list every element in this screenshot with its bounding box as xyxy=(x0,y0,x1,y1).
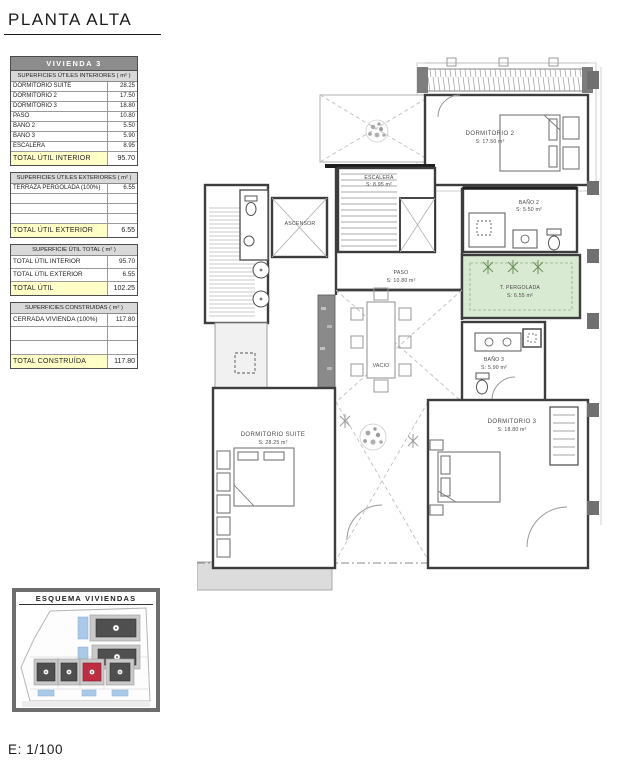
table-section-header: SUPERFICIES ÚTILES INTERIORES ( m² ) xyxy=(11,71,137,82)
surface-tables-panel: VIVIENDA 3 SUPERFICIES ÚTILES INTERIORES… xyxy=(10,56,138,375)
table-built-surfaces: SUPERFICIES CONSTRUIDAS ( m² ) CERRADA V… xyxy=(10,302,138,369)
toilet-icon xyxy=(547,229,561,250)
building-footprint xyxy=(106,659,134,685)
table-total-row: TOTAL CONSTRUÍDA117.80 xyxy=(11,355,137,368)
pool xyxy=(38,690,54,696)
table-row: DORMITORIO 217.50 xyxy=(11,92,137,102)
table-section-header: SUPERFICIE ÚTIL TOTAL ( m² ) xyxy=(11,245,137,256)
table-empty-row xyxy=(11,341,137,355)
table-row: CERRADA VIVIENDA (100%)117.80 xyxy=(11,314,137,327)
esquema-title: ESQUEMA VIVIENDAS xyxy=(19,592,153,605)
svg-text:S: 17.50 m²: S: 17.50 m² xyxy=(475,139,504,145)
svg-text:VACIO: VACIO xyxy=(373,363,390,369)
svg-text:S: 18.80 m²: S: 18.80 m² xyxy=(497,427,526,433)
highlighted-building xyxy=(80,659,104,685)
svg-text:DORMITORIO 3: DORMITORIO 3 xyxy=(488,419,537,425)
nightstand-icon xyxy=(563,147,579,169)
wardrobe-icon xyxy=(217,451,230,557)
table-total-useful-surface: SUPERFICIE ÚTIL TOTAL ( m² ) TOTAL ÚTIL … xyxy=(10,244,138,296)
room-dormitorio-2: DORMITORIO 2 S: 17.50 m² xyxy=(417,67,593,185)
pool xyxy=(112,690,128,696)
floor-plan: DORMITORIO 2 S: 17.50 m² xyxy=(197,55,607,595)
door-arc xyxy=(347,505,382,540)
site-plan xyxy=(16,605,156,708)
table-empty-row xyxy=(11,204,137,214)
bed-icon xyxy=(500,115,560,171)
room-terraza-pergolada: T. PERGOLADA S: 6.55 m² xyxy=(462,255,580,318)
table-row: TOTAL ÚTIL INTERIOR95.70 xyxy=(11,256,137,269)
patio-void xyxy=(320,95,432,162)
nightstand-icon xyxy=(563,117,579,139)
svg-text:BAÑO 2: BAÑO 2 xyxy=(519,199,539,206)
shower-icon xyxy=(469,213,505,247)
title-rule xyxy=(4,34,161,35)
table-total-row: TOTAL ÚTIL EXTERIOR6.55 xyxy=(11,224,137,237)
sink-icon xyxy=(244,236,254,246)
table-interior-surfaces: VIVIENDA 3 SUPERFICIES ÚTILES INTERIORES… xyxy=(10,56,138,166)
room-dormitorio-3: DORMITORIO 3 S: 18.80 m² xyxy=(428,400,588,568)
drawing-sheet: PLANTA ALTA VIVIENDA 3 SUPERFICIES ÚTILE… xyxy=(0,0,617,768)
stair-core: ESCALERA S: 8.95 m² xyxy=(325,166,435,252)
svg-text:S: 8.95 m²: S: 8.95 m² xyxy=(366,182,392,188)
svg-text:ESCALERA: ESCALERA xyxy=(364,175,394,181)
svg-text:S: 28.25 m²: S: 28.25 m² xyxy=(258,440,287,446)
page-title: PLANTA ALTA xyxy=(8,10,132,30)
table-row: BAÑO 35.90 xyxy=(11,132,137,142)
table-row: TOTAL ÚTIL EXTERIOR6.55 xyxy=(11,269,137,282)
building-footprint xyxy=(90,615,140,641)
bed-icon xyxy=(438,452,500,502)
table-row: BAÑO 25.50 xyxy=(11,122,137,132)
road xyxy=(22,701,150,707)
svg-text:ASCENSOR: ASCENSOR xyxy=(285,221,316,227)
table-total-row: TOTAL ÚTIL102.25 xyxy=(11,282,137,295)
pool xyxy=(82,690,96,696)
sink-icon xyxy=(513,230,537,248)
toilet-icon xyxy=(245,196,257,216)
scale-label: E: 1/100 xyxy=(8,742,63,757)
svg-text:T. PERGOLADA: T. PERGOLADA xyxy=(500,285,541,291)
unit-title: VIVIENDA 3 xyxy=(11,57,137,71)
bed-icon xyxy=(234,448,294,506)
table-section-header: SUPERFICIES ÚTILES EXTERIORES ( m² ) xyxy=(11,173,137,184)
toilet-icon xyxy=(476,373,489,394)
pool xyxy=(78,617,88,639)
table-empty-row xyxy=(11,214,137,224)
table-section-header: SUPERFICIES CONSTRUIDAS ( m² ) xyxy=(11,303,137,314)
svg-text:PASO: PASO xyxy=(394,270,409,276)
nightstand-icon xyxy=(430,440,443,450)
svg-text:BAÑO 3: BAÑO 3 xyxy=(484,356,504,363)
esquema-viviendas-box: ESQUEMA VIVIENDAS xyxy=(12,588,160,712)
duct-icon xyxy=(523,329,541,347)
svg-text:S: 5.50 m²: S: 5.50 m² xyxy=(516,207,542,213)
building-footprint xyxy=(34,659,58,685)
svg-text:S: 10.80 m²: S: 10.80 m² xyxy=(386,278,415,284)
sink-icon xyxy=(475,333,521,351)
table-empty-row xyxy=(11,327,137,341)
table-row: ESCALERA8.95 xyxy=(11,142,137,152)
building-footprint xyxy=(58,659,80,685)
table-total-row: TOTAL ÚTIL INTERIOR95.70 xyxy=(11,152,137,165)
table-row: DORMITORIO SUITE28.25 xyxy=(11,82,137,92)
room-dormitorio-suite: DORMITORIO SUITE S: 28.25 m² xyxy=(213,388,335,568)
table-row: TERRAZA PERGOLADA (100%)6.55 xyxy=(11,184,137,194)
pillar xyxy=(417,67,428,93)
room-bano-2: BAÑO 2 S: 5.50 m² xyxy=(463,188,577,252)
table-row: DORMITORIO 318.80 xyxy=(11,102,137,112)
svg-text:S: 5.90 m²: S: 5.90 m² xyxy=(481,365,507,371)
table-row: PASO10.80 xyxy=(11,112,137,122)
svg-text:DORMITORIO 2: DORMITORIO 2 xyxy=(466,131,515,137)
svg-text:S: 6.55 m²: S: 6.55 m² xyxy=(507,293,533,299)
left-wing xyxy=(205,185,269,323)
dining-table-icon xyxy=(351,288,411,392)
plant-icon xyxy=(408,434,418,448)
plant-icon xyxy=(340,414,350,428)
closet-icon xyxy=(550,407,578,465)
terrace xyxy=(336,402,428,560)
room-ascensor: ASCENSOR xyxy=(272,198,327,257)
room-vacio: VACIO xyxy=(336,288,462,402)
room-bano-3: BAÑO 3 S: 5.90 m² xyxy=(462,322,545,402)
table-empty-row xyxy=(11,194,137,204)
svg-text:DORMITORIO SUITE: DORMITORIO SUITE xyxy=(241,432,306,438)
nightstand-icon xyxy=(430,505,443,515)
pergola-strip xyxy=(422,69,590,91)
table-exterior-surfaces: SUPERFICIES ÚTILES EXTERIORES ( m² ) TER… xyxy=(10,172,138,238)
tree-icon xyxy=(360,424,386,450)
